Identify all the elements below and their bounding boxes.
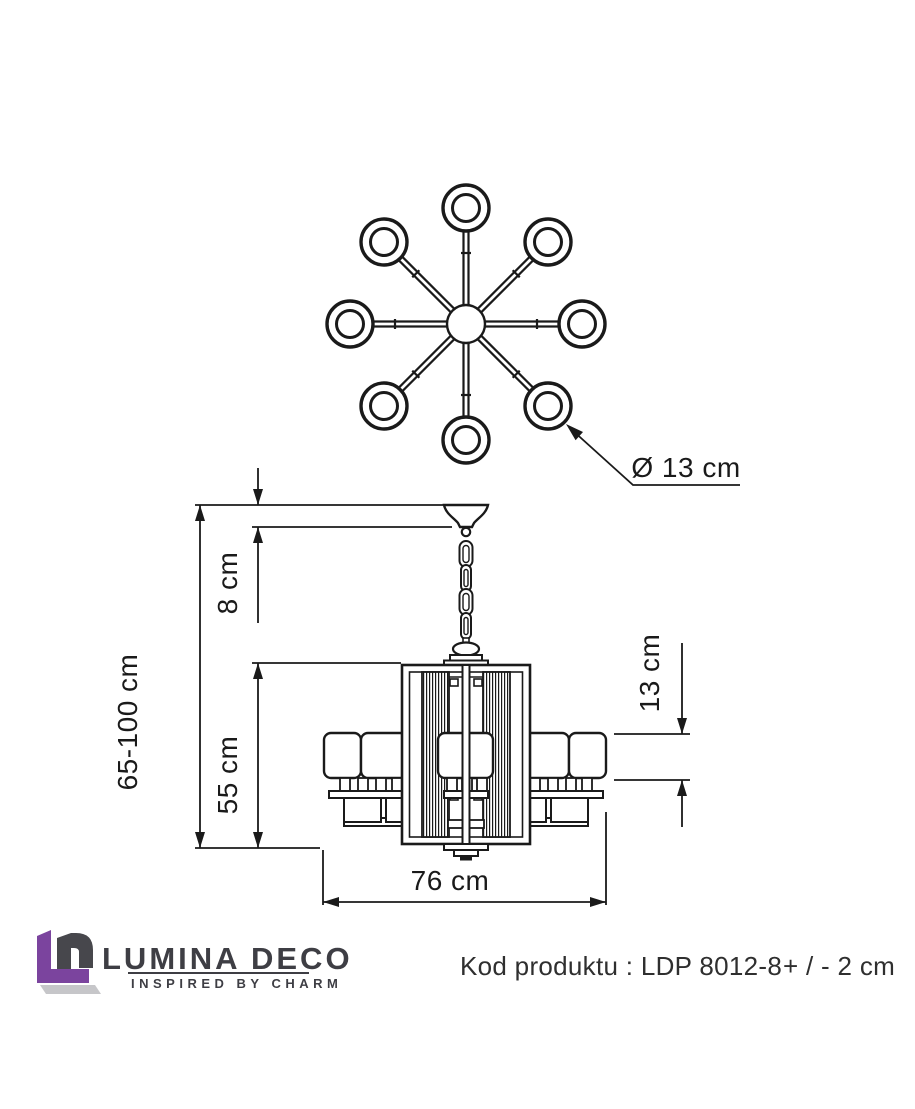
total-height-label: 65-100 cm: [112, 654, 143, 791]
dimension-body-height: 55 cm: [212, 663, 263, 848]
side-view-diagram: [324, 505, 606, 861]
brand-tagline: INSPIRED BY CHARM: [131, 976, 342, 991]
canopy-knob: [462, 528, 470, 536]
lumina-deco-logo-icon: [26, 924, 111, 1004]
body-bottom-cap-lower: [454, 850, 478, 856]
canopy-height-label: 8 cm: [212, 552, 243, 615]
dimension-canopy-height: 8 cm: [212, 468, 263, 623]
width-label: 76 cm: [411, 865, 490, 896]
connector-ball: [453, 643, 479, 656]
dimension-width: 76 cm: [323, 865, 606, 907]
logo-shadow: [40, 985, 101, 994]
body-height-label: 55 cm: [212, 736, 243, 815]
center-stem: [463, 665, 470, 857]
product-dimension-diagram: Ø 13 cm: [0, 0, 915, 1109]
product-code: Kod produktu : LDP 8012-8: [460, 951, 782, 982]
ceiling-canopy: [444, 505, 488, 527]
shade-diameter-callout: Ø 13 cm: [566, 424, 741, 485]
shade-height-label: 13 cm: [634, 634, 665, 713]
hanging-chain: [460, 541, 473, 639]
brand-divider: [128, 972, 309, 974]
top-view-diagram: [327, 185, 605, 463]
tolerance-note: + / - 2 cm: [783, 951, 895, 982]
logo-gray-stroke: [57, 933, 93, 972]
top-view-hub: [447, 305, 485, 343]
dimension-shade-height: 13 cm: [634, 634, 687, 827]
shade-diameter-label: Ø 13 cm: [631, 452, 740, 483]
dimension-total-height: 65-100 cm: [112, 505, 205, 848]
bottom-finial: [460, 856, 472, 861]
